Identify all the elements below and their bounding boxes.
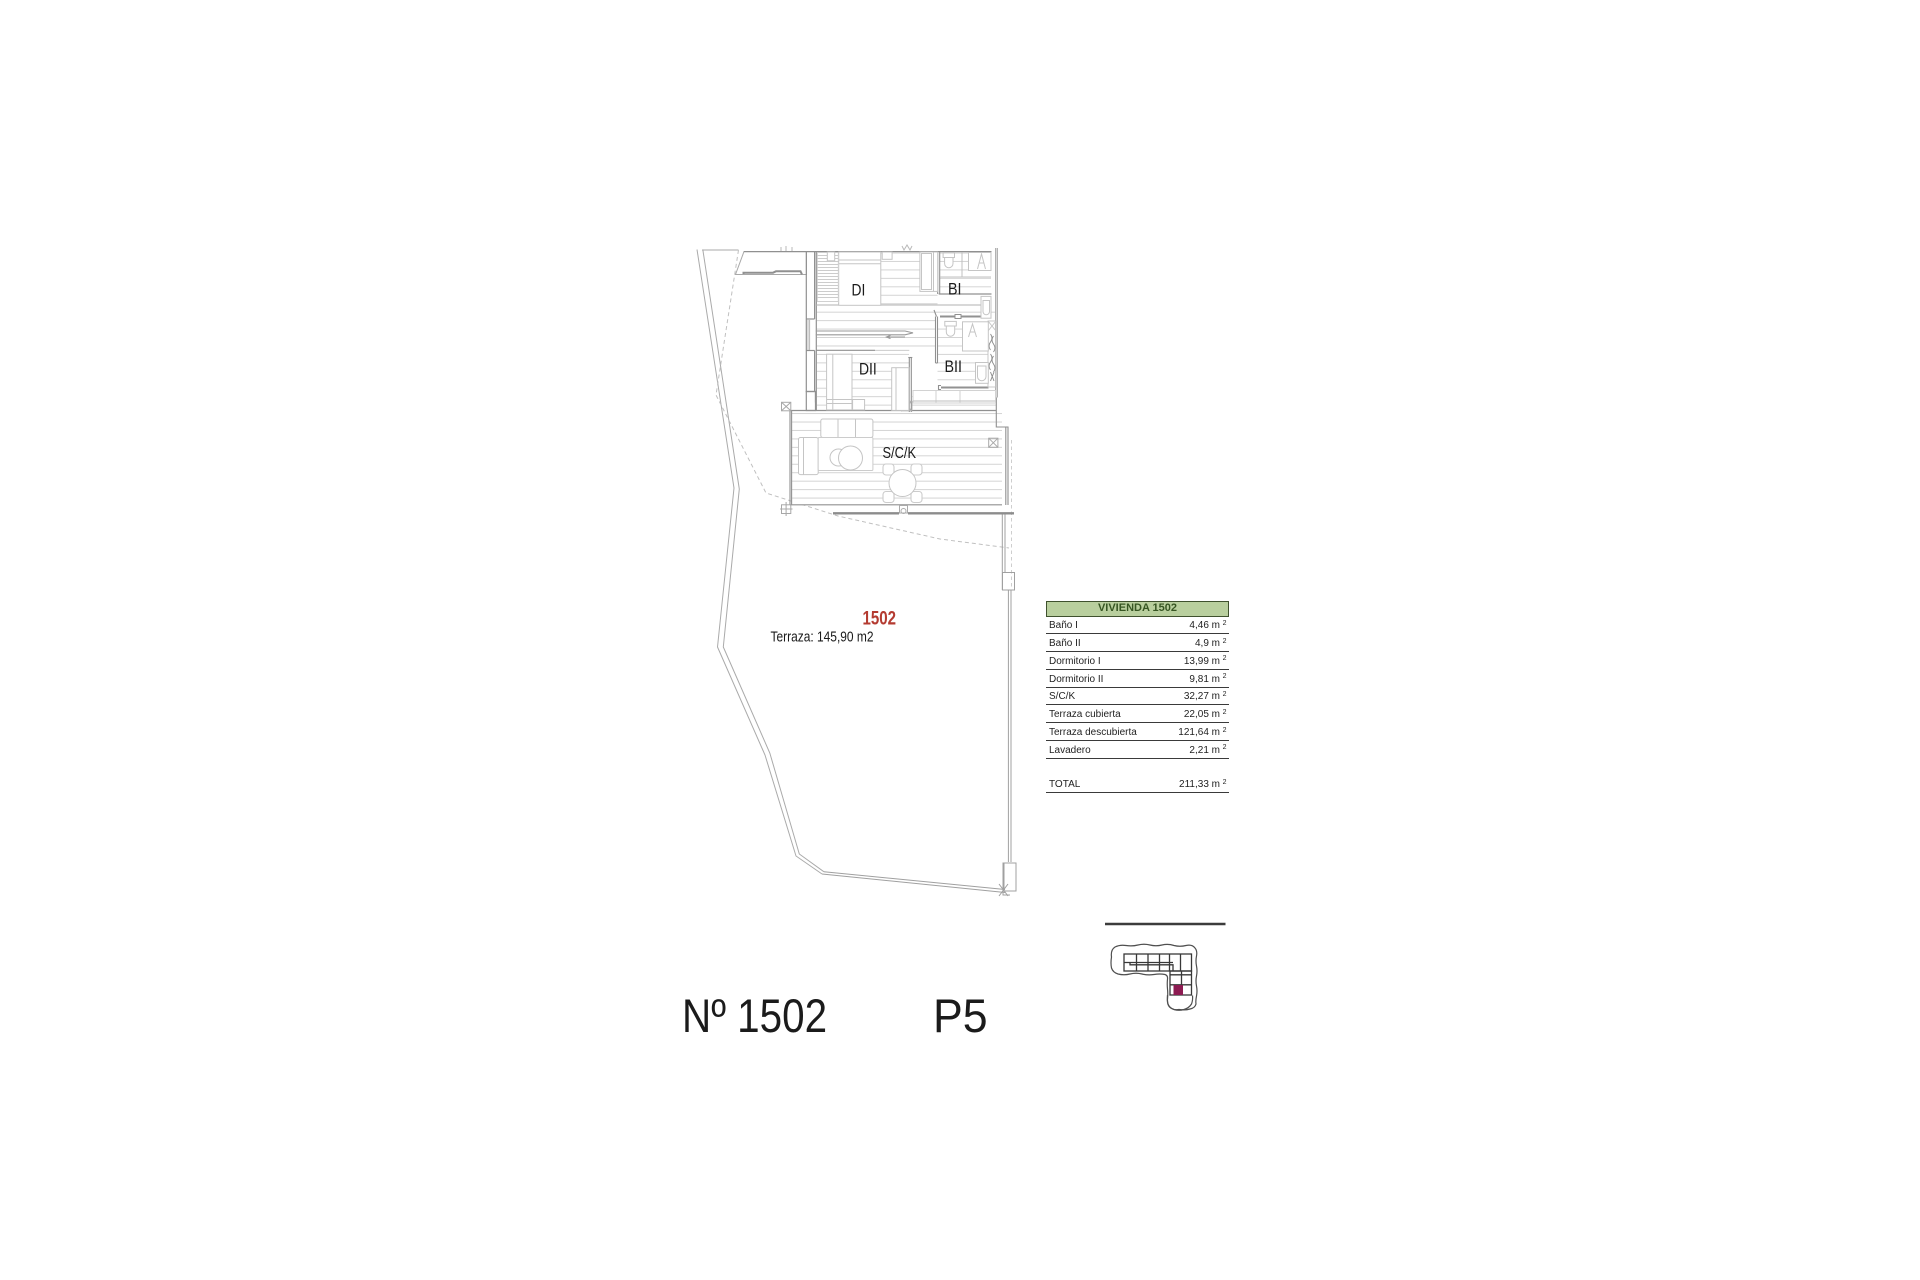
svg-text:DI: DI (852, 282, 866, 300)
svg-text:DII: DII (859, 360, 877, 379)
svg-text:S/C/K: S/C/K (883, 445, 917, 462)
svg-text:Terraza: 145,90 m2: Terraza: 145,90 m2 (771, 629, 874, 646)
svg-text:BI: BI (948, 281, 962, 299)
svg-text:BII: BII (945, 357, 963, 376)
svg-text:1502: 1502 (863, 608, 897, 630)
